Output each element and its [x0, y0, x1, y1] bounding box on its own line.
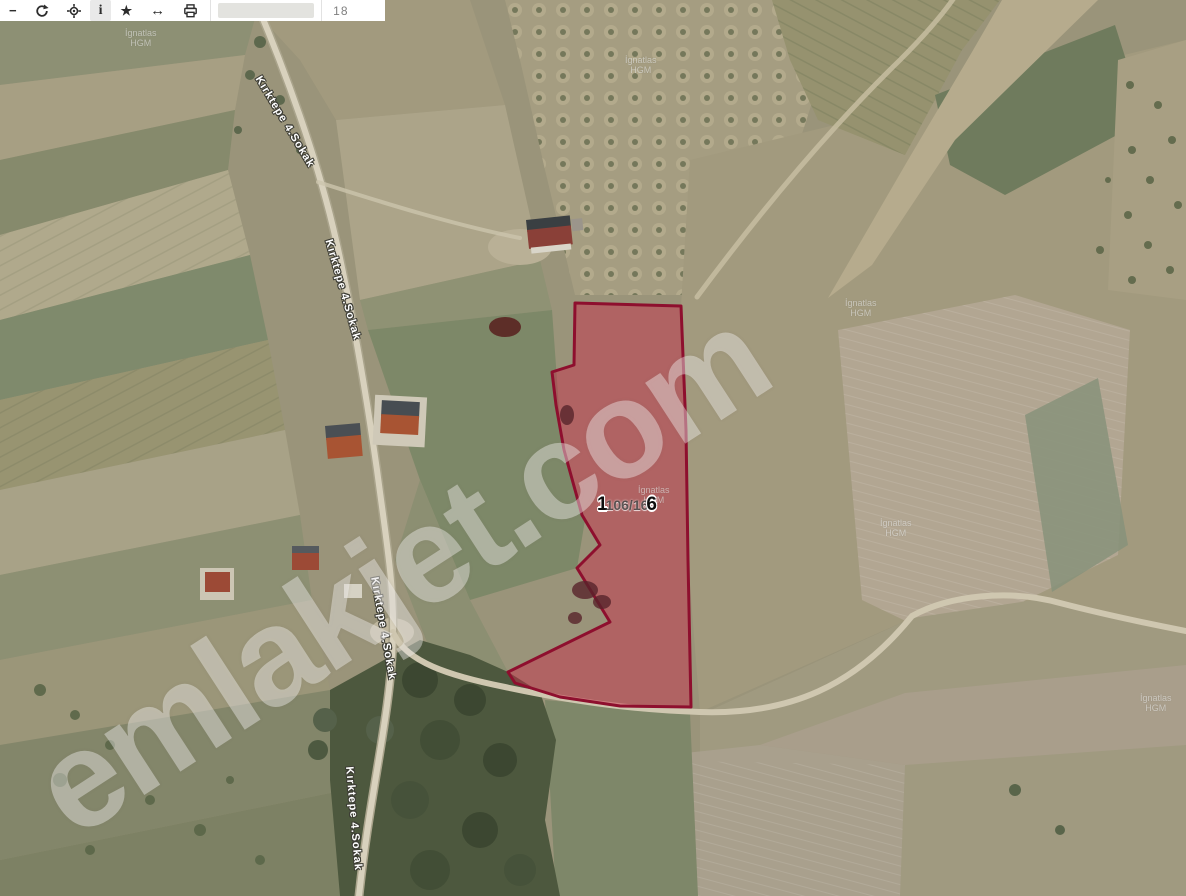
locate-button[interactable] [58, 0, 90, 21]
house [373, 395, 428, 448]
zoom-out-button[interactable]: − [0, 0, 26, 21]
print-icon [183, 4, 198, 18]
zoom-level-indicator: 18 [325, 4, 358, 18]
imagery-watermark: İgnatlasHGM [1140, 693, 1172, 713]
imagery-watermark: İgnatlasHGM [845, 298, 877, 318]
favorite-button[interactable]: ★ [111, 0, 141, 21]
map-viewer: Kırktepe 4.Sokak Kırktepe 4.Sokak Kırkte… [0, 0, 1186, 896]
toolbar-divider [210, 0, 211, 21]
imagery-watermark: İgnatlasHGM [625, 55, 657, 75]
toolbar-divider [321, 0, 322, 21]
parcel-label-faded: 106/16 [606, 497, 649, 513]
info-button[interactable]: i [90, 0, 112, 21]
parcel-label-bold-suffix: 6 [646, 494, 657, 516]
print-button[interactable] [174, 0, 207, 21]
refresh-button[interactable] [26, 0, 58, 21]
parcel-query-input[interactable] [218, 3, 314, 18]
measure-width-button[interactable]: ↔ [141, 0, 174, 21]
parcel-number-label: 1 106/16 6 [597, 494, 657, 516]
outbuilding [344, 584, 362, 598]
imagery-watermark: İgnatlasHGM [125, 28, 157, 48]
imagery-watermark: İgnatlasHGM [880, 518, 912, 538]
house [292, 546, 319, 570]
map-toolbar: − i ★ ↔ [0, 0, 385, 21]
house [200, 568, 234, 600]
locate-icon [67, 4, 81, 18]
refresh-icon [35, 4, 49, 18]
house [325, 423, 363, 459]
satellite-map[interactable] [0, 0, 1186, 896]
